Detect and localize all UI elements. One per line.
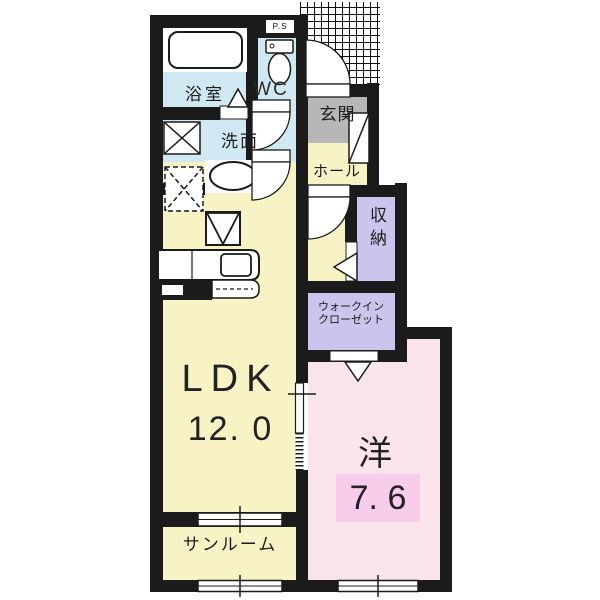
entrance-door-swing [306,40,350,84]
wic-door-gap [330,351,378,361]
kitchen-sink [221,254,251,276]
hall-label: ホール [306,160,368,181]
sunroom-bottom-window [198,575,282,597]
western-label: 洋 [340,426,410,475]
bath-label: 浴室 [163,80,247,105]
pipe-space-label: P.S [266,20,294,33]
wic-label-line1: ウォークイン [306,301,396,314]
wc-door-leaf [252,100,290,112]
fridge-space [165,167,203,211]
kitchen-cooktop [206,212,240,245]
wic-label: ウォークイン クローゼット [306,301,396,327]
floor-plan: P.S 浴室 WC 玄関 ホール 洗面 収納 ウォークイン クローゼット LDK… [0,0,600,600]
washroom-door-swing [252,162,290,200]
wic-label-line2: クローゼット [306,314,396,327]
fixtures-layer [0,0,600,600]
wic-door-marker [345,362,371,381]
storage-label: 収納 [364,206,389,280]
kitchen-counter [158,250,259,298]
bath-door-threshold [220,106,248,119]
hall-door-swing [308,197,350,239]
ldk-size-label: 12. 0 [163,410,298,449]
western-size-label: 7. 6 [336,474,420,522]
hall-door-leaf [308,185,350,197]
sunroom-label: サンルーム [163,530,297,555]
basin-bowl [210,162,256,190]
entrance-label: 玄関 [308,100,367,125]
entrance-door-leaf [306,84,350,97]
washer-space [164,122,200,154]
washroom-label: 洗面 [205,127,275,152]
bathtub [169,32,242,68]
western-bottom-window [338,575,418,597]
wc-label: WC [246,79,296,101]
sunroom-top-window [198,506,282,533]
ldk-label: LDK [163,358,298,401]
